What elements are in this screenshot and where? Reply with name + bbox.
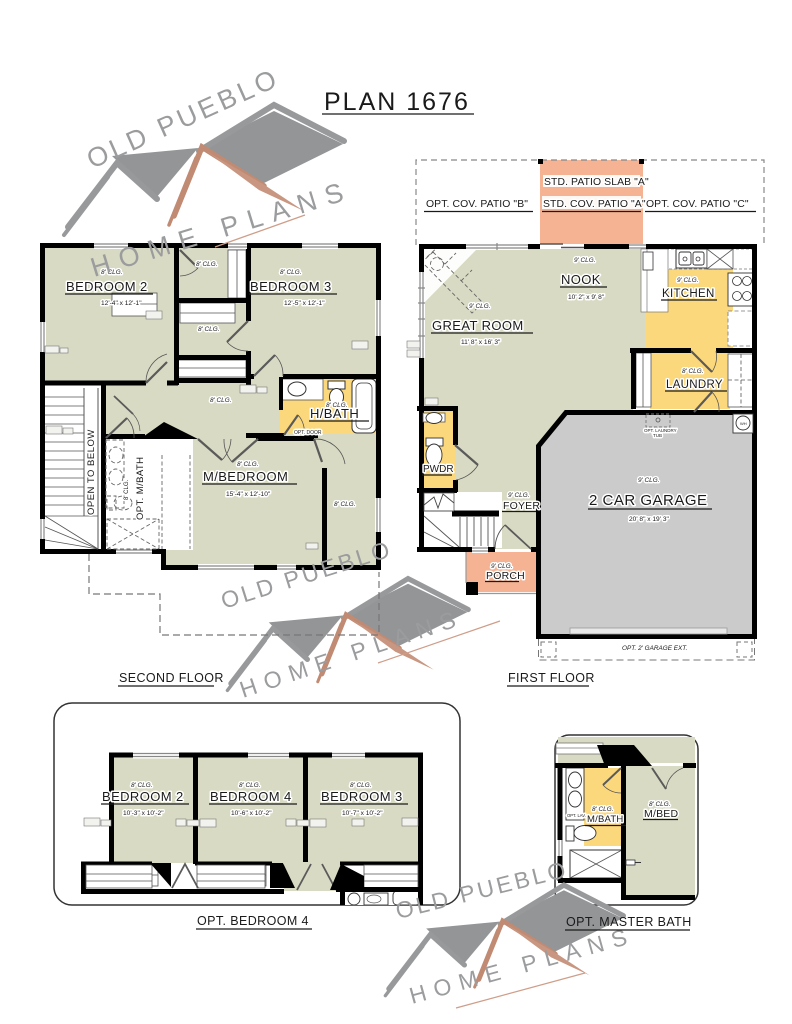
svg-text:8' CLG.: 8' CLG.: [210, 397, 231, 404]
svg-text:OPT. COV. PATIO "C": OPT. COV. PATIO "C": [646, 199, 749, 210]
svg-text:12'-5" x 12'-1": 12'-5" x 12'-1": [284, 300, 325, 307]
svg-text:10'-3" x 10'-2": 10'-3" x 10'-2": [123, 810, 164, 817]
svg-text:10'-6" x 10'-2": 10'-6" x 10'-2": [231, 810, 272, 817]
svg-text:M/BATH: M/BATH: [587, 814, 623, 825]
svg-text:8' CLG.: 8' CLG.: [131, 782, 152, 789]
svg-text:BEDROOM 3: BEDROOM 3: [321, 789, 403, 804]
svg-text:BEDROOM 3: BEDROOM 3: [250, 279, 332, 294]
svg-text:8' CLG.: 8' CLG.: [592, 806, 613, 813]
svg-text:M/BEDROOM: M/BEDROOM: [203, 469, 288, 484]
svg-text:8' CLG.: 8' CLG.: [350, 782, 371, 789]
svg-text:8' CLG.: 8' CLG.: [198, 326, 219, 333]
svg-text:8' CLG.: 8' CLG.: [334, 501, 355, 508]
svg-text:2 CAR GARAGE: 2 CAR GARAGE: [589, 492, 708, 509]
svg-text:H/BATH: H/BATH: [310, 406, 359, 421]
svg-text:WH: WH: [740, 421, 747, 426]
svg-text:9' CLG.: 9' CLG.: [508, 492, 529, 499]
svg-text:8' CLG.: 8' CLG.: [280, 269, 301, 276]
svg-text:NOOK: NOOK: [561, 272, 601, 287]
svg-text:SECOND FLOOR: SECOND FLOOR: [119, 671, 224, 685]
svg-text:PLAN 1676: PLAN 1676: [324, 88, 470, 116]
svg-text:10'-7" x 10'-2": 10'-7" x 10'-2": [342, 810, 383, 817]
svg-text:OPT. MASTER BATH: OPT. MASTER BATH: [566, 915, 692, 929]
svg-text:20' 8" x 19' 3": 20' 8" x 19' 3": [629, 516, 669, 523]
svg-text:8' CLG.: 8' CLG.: [682, 368, 703, 375]
svg-text:8' CLG.: 8' CLG.: [239, 782, 260, 789]
svg-text:8' CLG.: 8' CLG.: [237, 461, 258, 468]
svg-text:STD. PATIO SLAB "A": STD. PATIO SLAB "A": [544, 177, 649, 188]
svg-text:OPT. DOOR: OPT. DOOR: [294, 430, 322, 436]
svg-text:OPT. M/BATH: OPT. M/BATH: [135, 457, 146, 520]
svg-text:OPEN TO BELOW: OPEN TO BELOW: [86, 429, 97, 515]
svg-text:LAUNDRY: LAUNDRY: [666, 379, 723, 391]
svg-text:STD. COV. PATIO "A": STD. COV. PATIO "A": [543, 199, 646, 210]
svg-text:KITCHEN: KITCHEN: [662, 288, 715, 300]
svg-text:8' CLG.: 8' CLG.: [649, 801, 670, 808]
svg-text:11' 8" x 16' 3": 11' 8" x 16' 3": [461, 339, 501, 346]
svg-text:9' CLG.: 9' CLG.: [677, 277, 698, 284]
svg-text:15'-4" x 12'-10": 15'-4" x 12'-10": [226, 491, 271, 498]
svg-text:8' CLG.: 8' CLG.: [196, 261, 217, 268]
svg-text:PORCH: PORCH: [486, 570, 525, 582]
svg-text:10' 2" x 9' 8": 10' 2" x 9' 8": [568, 294, 605, 301]
svg-text:BEDROOM 2: BEDROOM 2: [66, 279, 148, 294]
svg-text:FOYER: FOYER: [503, 500, 540, 512]
svg-text:9' CLG.: 9' CLG.: [638, 477, 659, 484]
svg-text:BEDROOM 2: BEDROOM 2: [102, 789, 184, 804]
svg-text:OPT. LAV.: OPT. LAV.: [567, 813, 586, 818]
svg-text:OPT. BEDROOM 4: OPT. BEDROOM 4: [197, 914, 309, 928]
svg-text:M/BED: M/BED: [644, 808, 678, 820]
svg-text:12'-4" x 12'-1": 12'-4" x 12'-1": [101, 300, 142, 307]
svg-text:BEDROOM 4: BEDROOM 4: [210, 789, 292, 804]
svg-text:GREAT ROOM: GREAT ROOM: [432, 318, 524, 333]
svg-text:OPT. COV. PATIO "B": OPT. COV. PATIO "B": [426, 199, 528, 210]
svg-text:9' CLG.: 9' CLG.: [574, 257, 595, 264]
svg-text:TUB: TUB: [653, 433, 662, 438]
svg-text:PWDR: PWDR: [423, 464, 454, 475]
svg-text:8' CLG.: 8' CLG.: [124, 480, 130, 500]
svg-text:FIRST FLOOR: FIRST FLOOR: [508, 671, 595, 685]
svg-text:9' CLG.: 9' CLG.: [469, 303, 490, 310]
svg-text:OPT. 2' GARAGE EXT.: OPT. 2' GARAGE EXT.: [622, 645, 687, 652]
svg-text:9' CLG.: 9' CLG.: [491, 563, 512, 570]
